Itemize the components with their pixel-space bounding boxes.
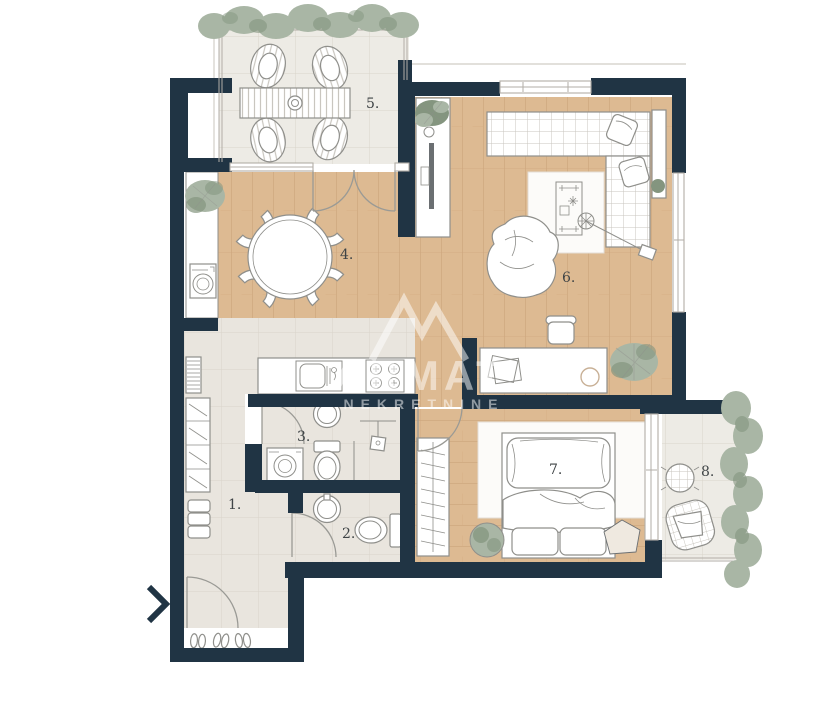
desk-plant <box>610 343 658 381</box>
radiator <box>186 357 201 393</box>
watermark-subtitle: NEKRETNINE <box>343 396 504 412</box>
room-label-kitchen: 4. <box>340 247 353 263</box>
room-label-hallway: 1. <box>228 497 241 513</box>
potted-plant <box>470 523 504 557</box>
room-label-wc: 2. <box>342 526 355 542</box>
room-label-terrace: 5. <box>366 96 379 112</box>
terrace-fixed-pane <box>395 163 409 171</box>
room-label-balcony: 8. <box>701 464 714 480</box>
hall-wardrobe <box>186 398 210 492</box>
wardrobe <box>417 438 449 556</box>
shelf-plant <box>651 179 665 193</box>
hall-drawers <box>188 500 210 538</box>
desk-chair <box>546 316 576 344</box>
floor-plan-page: 1. 2. 3. 4. 5. 6. 7. 8. ARMAT NEKRETNINE <box>0 0 826 706</box>
foot-cushion <box>560 528 606 555</box>
bean-bag <box>487 216 558 297</box>
dining-table <box>248 215 332 299</box>
foot-cushion <box>512 528 558 555</box>
floor-plan-drawing: 1. 2. 3. 4. 5. 6. 7. 8. ARMAT NEKRETNINE <box>0 0 826 706</box>
room-label-living: 6. <box>562 270 575 286</box>
entrance-arrow-icon <box>149 587 166 621</box>
watermark-brand: ARMAT <box>333 352 507 399</box>
toilet <box>314 441 340 483</box>
duvet <box>503 490 615 532</box>
bath-washing-machine <box>267 448 303 482</box>
washing-machine <box>190 264 216 298</box>
tv <box>429 143 434 209</box>
room-label-bedroom: 7. <box>549 462 562 478</box>
room-label-bathroom: 3. <box>297 429 310 445</box>
bed <box>502 433 615 558</box>
